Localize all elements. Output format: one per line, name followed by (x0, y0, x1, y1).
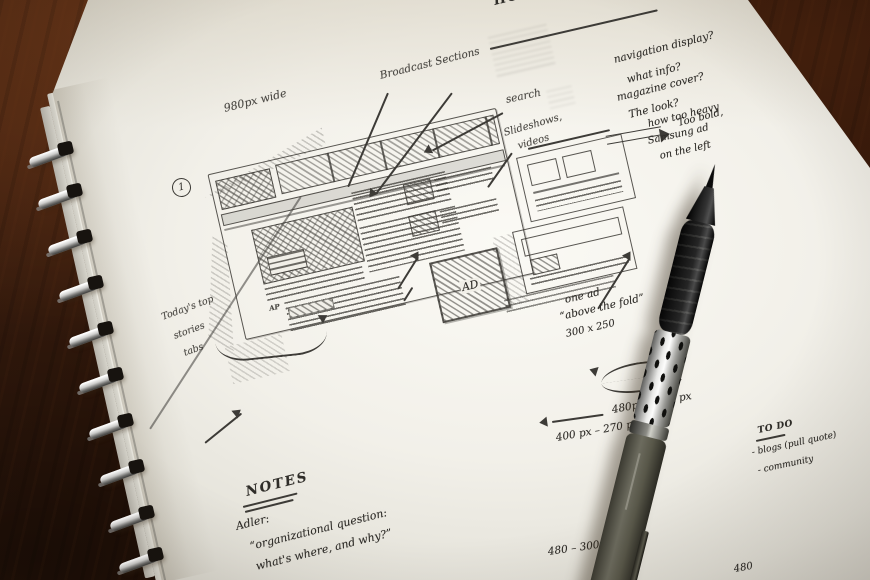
photo-scene: HOMEPAGE REDESIGN 980px wide 1 Broadcast… (0, 0, 870, 580)
spiral-binding (0, 0, 870, 580)
pen-tip (705, 163, 720, 188)
pen-brand-print (624, 453, 640, 510)
